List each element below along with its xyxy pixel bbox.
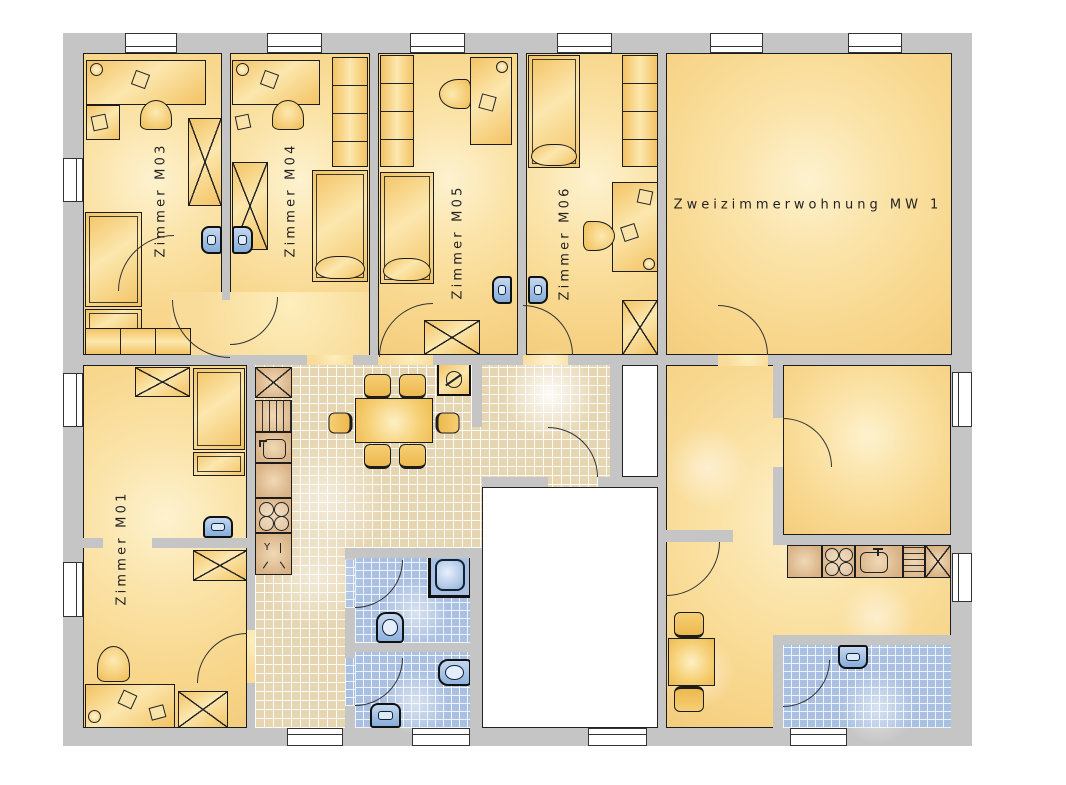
window	[287, 728, 343, 746]
stairwell	[482, 487, 658, 728]
kitchen-sink	[855, 545, 903, 578]
office-chair	[439, 79, 471, 109]
interior-wall	[658, 365, 666, 728]
desk-lamp-icon	[496, 61, 508, 73]
pillow	[383, 258, 431, 281]
pillow	[531, 144, 577, 166]
kitchen-counter	[787, 545, 822, 578]
washbasin	[201, 226, 222, 254]
window	[588, 728, 647, 746]
dining-table	[668, 638, 715, 686]
utility-symbol: Y	[264, 542, 270, 553]
interior-wall	[666, 355, 718, 365]
office-chair	[272, 100, 304, 130]
wardrobe	[135, 367, 190, 397]
dining-chair	[329, 413, 353, 434]
interior-wall	[783, 635, 951, 645]
shelf	[332, 57, 368, 167]
refrigerator	[255, 367, 292, 398]
pillow	[315, 256, 365, 279]
washbasin	[528, 276, 548, 304]
dining-chair	[436, 413, 460, 434]
desk-lamp-icon	[643, 258, 655, 270]
window	[63, 158, 83, 202]
utility-unit: Y	[255, 533, 292, 575]
sink-basin	[263, 439, 286, 459]
entry-strip	[622, 365, 658, 477]
office-chair	[97, 646, 130, 682]
toilet	[376, 612, 404, 643]
wardrobe	[178, 691, 228, 728]
interior-wall	[345, 706, 355, 728]
interior-wall	[433, 355, 472, 365]
drainboard	[903, 545, 925, 578]
room-label-m01: Zimmer M01	[115, 490, 130, 605]
washbasin	[203, 516, 233, 538]
printer-icon	[235, 114, 252, 131]
room-label-mw1: Zweizimmerwohnung MW 1	[674, 198, 943, 213]
washing-machine	[437, 363, 471, 396]
bed-bench	[193, 452, 245, 476]
interior-wall	[345, 548, 482, 558]
window	[848, 33, 902, 53]
utility-marks	[280, 561, 285, 568]
window	[410, 33, 465, 53]
door-threshold	[718, 355, 768, 366]
interior-wall	[658, 53, 666, 355]
interior-wall	[598, 477, 658, 487]
interior-wall	[482, 355, 523, 365]
window	[952, 372, 972, 427]
kitchen-sink	[255, 432, 292, 463]
shelf	[622, 55, 658, 167]
interior-wall	[345, 608, 355, 658]
interior-wall	[783, 535, 951, 545]
printer-icon	[637, 189, 654, 206]
floor-plan: Y	[0, 0, 1066, 785]
room-label-m04: Zimmer M04	[284, 142, 299, 257]
washbasin	[838, 645, 868, 669]
wardrobe	[193, 550, 247, 581]
stove	[822, 545, 855, 578]
washbasin	[492, 276, 512, 304]
interior-wall	[610, 365, 620, 477]
desk-lamp-icon	[90, 63, 103, 76]
window	[412, 728, 470, 746]
washbasin	[232, 226, 253, 254]
window	[267, 33, 322, 53]
kitchen-counter	[255, 463, 292, 498]
dining-chair	[399, 444, 426, 469]
window	[710, 33, 763, 53]
interior-wall	[222, 53, 230, 300]
utility-marks	[280, 543, 281, 553]
interior-wall	[470, 548, 482, 728]
desk-lamp-icon	[236, 63, 249, 76]
shelf	[380, 55, 414, 167]
window	[952, 553, 972, 602]
interior-wall	[773, 365, 783, 418]
office-chair	[140, 100, 172, 130]
door-threshold	[345, 658, 355, 706]
interior-wall	[83, 355, 307, 365]
room-label-m05: Zimmer M05	[451, 184, 466, 299]
utility-marks	[263, 561, 268, 568]
stove	[255, 498, 292, 533]
interior-wall	[568, 355, 658, 365]
sink-basin	[860, 552, 888, 573]
faucet-icon	[873, 548, 883, 550]
interior-wall	[370, 53, 378, 355]
wardrobe	[622, 300, 658, 355]
interior-wall	[472, 355, 482, 427]
sideboard	[85, 328, 191, 355]
room-label-m06: Zimmer M06	[558, 185, 573, 300]
wardrobe	[188, 118, 222, 206]
interior-wall	[773, 467, 783, 545]
interior-wall	[482, 477, 548, 487]
window	[125, 33, 177, 53]
window	[557, 33, 612, 53]
interior-wall	[355, 643, 472, 652]
interior-wall	[666, 530, 733, 542]
interior-wall	[152, 538, 247, 548]
printer-icon	[91, 114, 109, 132]
bed	[193, 368, 245, 450]
door-threshold	[345, 560, 355, 608]
desk-lamp-icon	[88, 710, 101, 723]
interior-wall	[353, 355, 378, 365]
faucet-icon	[259, 440, 261, 447]
dining-chair	[674, 612, 704, 638]
dining-chair	[364, 374, 391, 399]
interior-wall	[247, 365, 255, 630]
room-label-m03: Zimmer M03	[154, 142, 169, 257]
shower	[428, 552, 472, 598]
window	[63, 373, 83, 427]
dining-chair	[399, 374, 426, 399]
drainboard	[255, 400, 292, 432]
window	[790, 728, 847, 746]
door-threshold	[247, 630, 255, 683]
interior-wall	[83, 538, 103, 548]
interior-wall	[773, 635, 783, 728]
window	[63, 562, 83, 617]
interior-wall	[768, 355, 952, 365]
dining-chair	[364, 444, 391, 469]
dining-chair	[674, 686, 704, 712]
interior-wall	[247, 683, 255, 728]
dining-table	[355, 398, 433, 443]
kitchen-cabinet	[925, 545, 951, 578]
toilet	[438, 659, 471, 686]
washbasin	[370, 703, 401, 728]
